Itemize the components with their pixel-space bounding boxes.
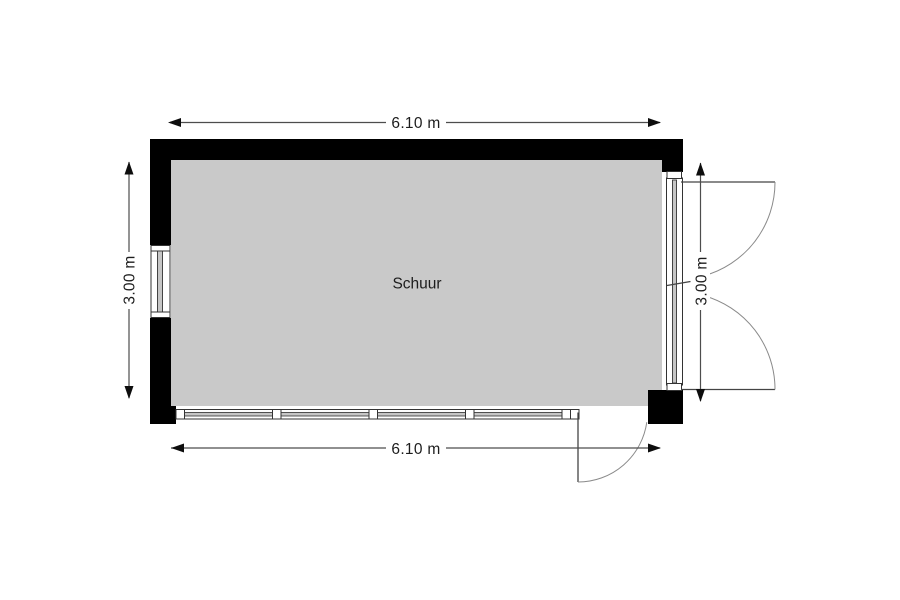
window-left [151, 246, 170, 318]
wall-corner-bottom-right [648, 390, 683, 424]
mullion-post [562, 410, 571, 420]
door-band-right [667, 172, 683, 391]
dimension-label-left: 3.00 m [122, 255, 139, 304]
window-left-cap-bottom [151, 312, 170, 318]
door-band-cap-top [667, 172, 682, 179]
wall-top [150, 139, 683, 160]
window-left-glazing [158, 251, 163, 312]
dimension-label-bottom: 6.10 m [391, 441, 440, 458]
floor-plan: 6.10 m 6.10 m 3.00 m 3.00 m Schuur [0, 0, 900, 600]
dimension-label-right: 3.00 m [694, 256, 711, 305]
mullion-post [176, 410, 185, 420]
mullion-post [466, 410, 475, 420]
floorplan-canvas: 6.10 m 6.10 m 3.00 m 3.00 m Schuur [0, 0, 900, 600]
door-band-glazing [673, 180, 677, 383]
mullion-post [273, 410, 282, 420]
mullion-post [369, 410, 378, 420]
door-band-cap-bottom [667, 384, 682, 391]
window-left-cap-top [151, 246, 170, 252]
window-band-bottom [176, 410, 579, 420]
dimension-label-top: 6.10 m [391, 115, 440, 132]
room-label: Schuur [392, 276, 441, 293]
